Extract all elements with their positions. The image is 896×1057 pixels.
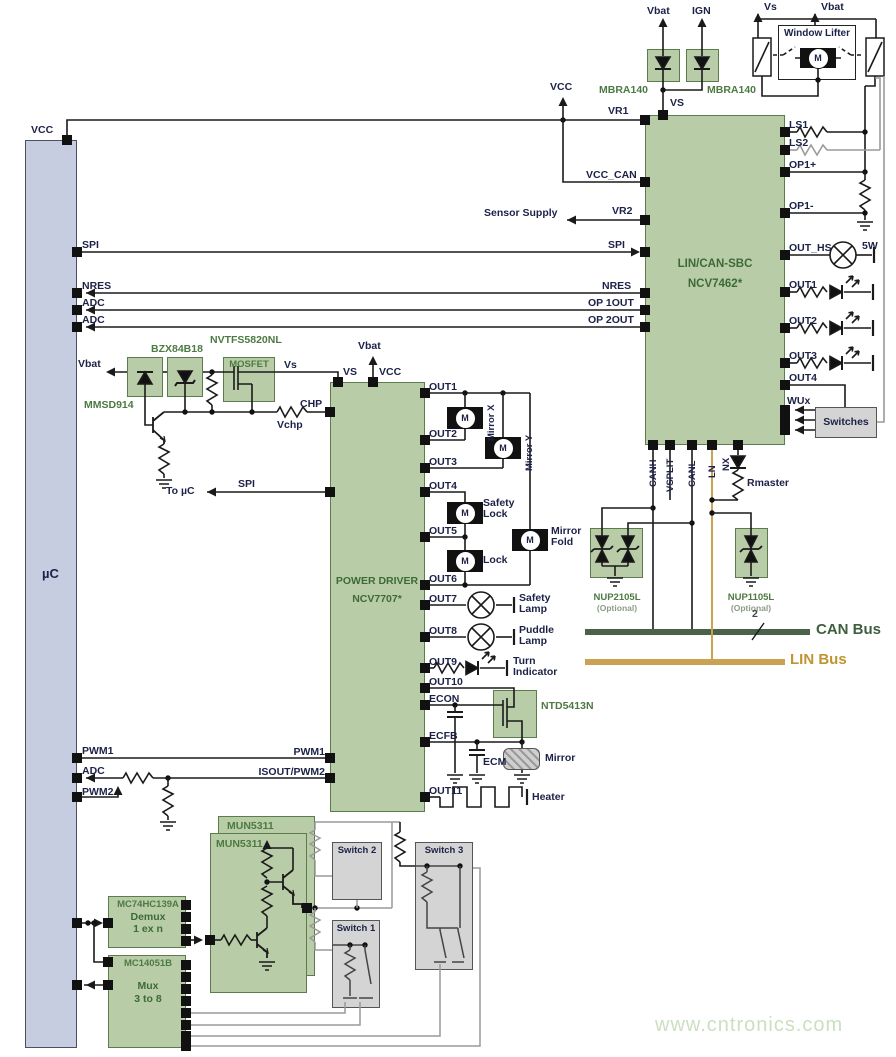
ign-label: IGN (692, 5, 711, 17)
lin-bus-label: LIN Bus (790, 651, 847, 668)
sbc-out1-label: OUT1 (789, 279, 817, 291)
mun5311-back-label: MUN5311 (227, 820, 274, 832)
sbc-out2-label: OUT2 (789, 315, 817, 327)
sbc-op2out-label: OP 2OUT (588, 314, 634, 326)
lamp-5w-label: 5W (862, 240, 878, 252)
drv-econ-label: ECON (429, 693, 459, 705)
ecm-label: ECM (483, 756, 506, 768)
sbc-part-number: NCV7462* (655, 278, 775, 290)
vbat-top-label: Vbat (647, 5, 670, 17)
sbc-wux-label: WUx (787, 395, 810, 407)
mcu-nres-label: NRES (82, 280, 111, 292)
drv-out6-label: OUT6 (429, 573, 457, 585)
sbc-spi-label: SPI (608, 239, 625, 251)
mirror-x-label: Mirror X (486, 405, 497, 441)
sbc-out3-label: OUT3 (789, 350, 817, 362)
safety-lock-motor: M (447, 502, 483, 524)
turn-indicator-label: Turn Indicator (513, 656, 565, 678)
vcc-arrow-label: VCC (550, 81, 572, 93)
mcu-pwm1-label: PWM1 (82, 745, 114, 757)
mirror-fold-motor: M (512, 529, 548, 551)
window-vbat-label: Vbat (821, 1, 844, 13)
nup1105l-optional-label: (Optional) (727, 603, 775, 613)
drv-out3-label: OUT3 (429, 456, 457, 468)
lock-motor: M (447, 550, 483, 572)
vchp-label: Vchp (277, 419, 303, 431)
window-vs-label: Vs (764, 1, 777, 13)
switch1-label: Switch 1 (334, 923, 378, 934)
mcu-spi-label: SPI (82, 239, 99, 251)
drv-pwm1-label: PWM1 (250, 746, 325, 758)
mcu-label: µC (42, 566, 59, 581)
driver-vs-label: VS (343, 366, 357, 378)
switches-label: Switches (816, 416, 876, 428)
sbc-canh-label: CANH (648, 460, 659, 487)
mux-ratio-label: 3 to 8 (112, 993, 184, 1005)
demux-ratio-label: 1 ex n (112, 923, 184, 935)
sbc-out4-label: OUT4 (789, 372, 817, 384)
bzx84b18-label: BZX84B18 (151, 343, 203, 355)
safety-lock-label: Safety Lock (483, 498, 527, 520)
schematic-canvas: M M M M M M µC VCC SPI NRES ADC ADC PWM1… (0, 0, 896, 1057)
motor-icon: M (455, 503, 476, 524)
driver-part-number: NCV7707* (332, 593, 422, 605)
motor-icon: M (455, 408, 476, 429)
lock-label: Lock (483, 554, 508, 566)
mbra140-right-label: MBRA140 (707, 84, 756, 96)
can-bus-label: CAN Bus (816, 621, 881, 638)
sbc-vcccan-label: VCC_CAN (586, 169, 637, 181)
puddle-lamp-label: Puddle Lamp (519, 625, 561, 647)
sbc-op1out-label: OP 1OUT (588, 297, 634, 309)
sbc-vr1-label: VR1 (608, 105, 628, 117)
sbc-canl-label: CANL (687, 461, 698, 487)
drv-out7-label: OUT7 (429, 593, 457, 605)
driver-title: POWER DRIVER (332, 575, 422, 587)
mcu-adc1-label: ADC (82, 297, 105, 309)
nup1105l-label: NUP1105L (721, 592, 781, 603)
mun5311-front-label: MUN5311 (216, 838, 263, 850)
heater-label: Heater (532, 791, 565, 803)
driver-vbat-label: Vbat (358, 340, 381, 352)
to-uc-label: To µC (166, 485, 195, 497)
switch2-label: Switch 2 (334, 845, 380, 856)
mirror-label: Mirror (545, 752, 575, 764)
drv-out8-label: OUT8 (429, 625, 457, 637)
mcu-pwm2-label: PWM2 (82, 786, 114, 798)
vs-rail-label: Vs (284, 359, 297, 371)
sbc-ls2-label: LS2 (789, 137, 808, 149)
demux-part-label: MC74HC139A (112, 899, 184, 910)
drv-out1-label: OUT1 (429, 381, 457, 393)
watermark: www.cntronics.com (655, 1014, 843, 1037)
sbc-nres-label: NRES (602, 280, 631, 292)
demux-label: Demux (112, 911, 184, 923)
window-lifter-label: Window Lifter (779, 28, 855, 39)
window-lifter-motor: M (800, 48, 836, 68)
ntd5413n-label: NTD5413N (541, 700, 594, 712)
mmsd914-label: MMSD914 (84, 399, 134, 411)
drv-out2-label: OUT2 (429, 428, 457, 440)
mbra140-left-label: MBRA140 (599, 84, 648, 96)
sbc-op1m-label: OP1- (789, 200, 814, 212)
nup2105l-optional-label: (Optional) (594, 603, 640, 613)
drv-ecfb-label: ECFB (429, 730, 458, 742)
drv-out5-label: OUT5 (429, 525, 457, 537)
nup2105l-label: NUP2105L (587, 592, 647, 603)
motor-icon: M (520, 530, 541, 551)
driver-vcc-label: VCC (379, 366, 401, 378)
mirror-fold-label: Mirror Fold (551, 526, 595, 548)
mcu-adc2-label: ADC (82, 314, 105, 326)
drv-out4-label: OUT4 (429, 480, 457, 492)
sbc-ouths-label: OUT_HS (789, 242, 832, 254)
mcu-vcc-label: VCC (31, 124, 53, 136)
rmaster-label: Rmaster (747, 477, 789, 489)
mosfet-label: MOSFET (225, 359, 273, 370)
sensor-supply-label: Sensor Supply (484, 207, 558, 219)
sbc-vr2-label: VR2 (612, 205, 632, 217)
switch3-label: Switch 3 (417, 845, 471, 856)
sbc-title: LIN/CAN-SBC (655, 258, 775, 270)
vbat-left-label: Vbat (78, 358, 101, 370)
mirror-y-label: Mirror Y (524, 435, 535, 471)
sbc-nx-label: NX (721, 458, 732, 471)
safety-lamp-label: Safety Lamp (519, 593, 561, 615)
sbc-ln-label: LN (707, 465, 718, 478)
drv-out11-label: OUT11 (429, 785, 462, 797)
mux-part-label: MC14051B (112, 958, 184, 969)
sbc-ls1-label: LS1 (789, 119, 808, 131)
mux-label: Mux (112, 980, 184, 992)
drv-isout-label: ISOUT/PWM2 (240, 766, 325, 778)
sbc-op1p-label: OP1+ (789, 159, 816, 171)
drv-out10-label: OUT10 (429, 676, 463, 688)
vs-node-label: VS (670, 97, 684, 109)
can-pair-count: 2 (752, 608, 758, 620)
motor-icon: M (455, 551, 476, 572)
chp-pin-label: CHP (300, 398, 322, 410)
sbc-vsplit-label: VSPLIT (665, 459, 676, 492)
motor-icon: M (808, 48, 829, 69)
spi-driver-label: SPI (238, 478, 255, 490)
nvtfs5820nl-label: NVTFS5820NL (210, 334, 282, 346)
mcu-adc3-label: ADC (82, 765, 105, 777)
drv-out9-label: OUT9 (429, 656, 457, 668)
mirror-x-motor: M (447, 407, 483, 429)
